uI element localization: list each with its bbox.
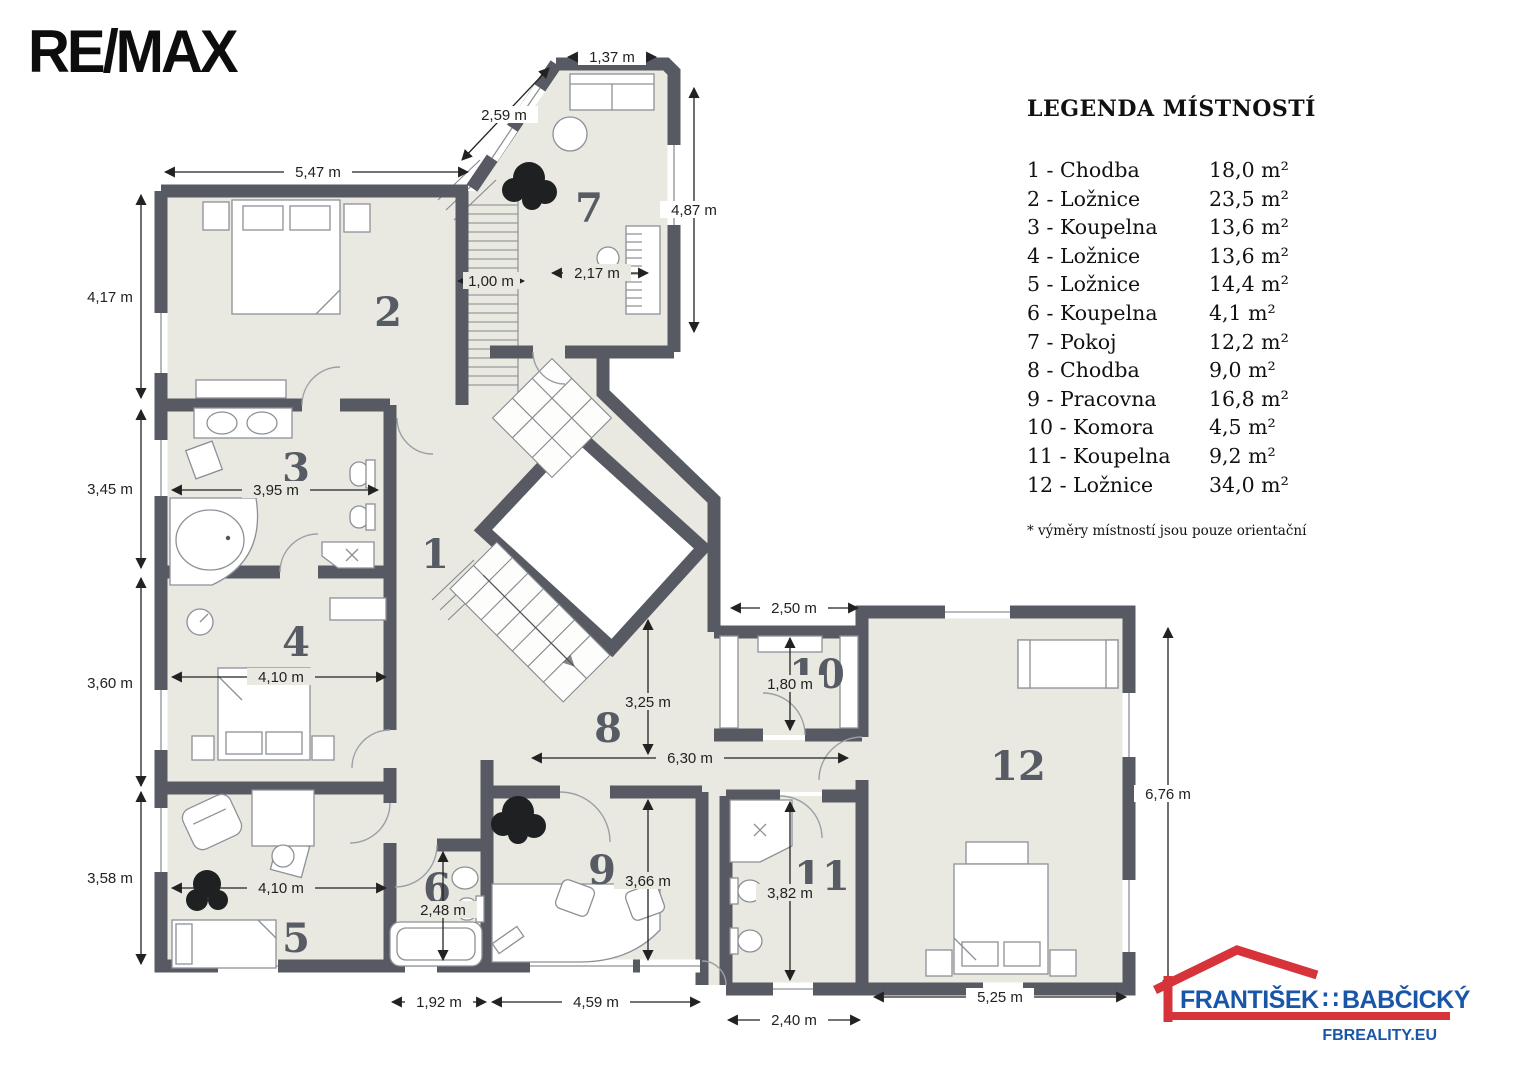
agent-name: FRANTIŠEK∷BABČICKÝ xyxy=(1180,984,1471,1014)
room-8-number: 8 xyxy=(594,705,622,752)
legend-row: 11 - Koupelna9,2 m² xyxy=(1027,442,1357,471)
dim-label: 4,10 m xyxy=(258,669,304,686)
dim-label: 6,76 m xyxy=(1145,786,1191,803)
floorplan-page: RE/MAX LEGENDA MÍSTNOSTÍ 1 - Chodba18,0 … xyxy=(0,0,1527,1080)
legend-row: 9 - Pracovna16,8 m² xyxy=(1027,385,1357,414)
dim-label: 3,60 m xyxy=(87,675,133,692)
dim-label: 3,95 m xyxy=(253,482,299,499)
legend-list: 1 - Chodba18,0 m² 2 - Ložnice23,5 m² 3 -… xyxy=(1027,156,1357,499)
dim-label: 2,17 m xyxy=(574,265,620,282)
dim-label: 5,47 m xyxy=(295,164,341,181)
legend-title: LEGENDA MÍSTNOSTÍ xyxy=(1027,96,1357,122)
dim-label: 4,17 m xyxy=(87,289,133,306)
dim-label: 2,59 m xyxy=(481,107,527,124)
legend-row: 10 - Komora4,5 m² xyxy=(1027,413,1357,442)
dim-label: 3,25 m xyxy=(625,694,671,711)
dim-label: 5,25 m xyxy=(977,989,1023,1006)
dim-label: 4,10 m xyxy=(258,880,304,897)
dim-label: 3,58 m xyxy=(87,870,133,887)
dim-label: 4,59 m xyxy=(573,994,619,1011)
dim-label: 2,50 m xyxy=(771,600,817,617)
room-4-number: 4 xyxy=(282,619,310,666)
room-5-number: 5 xyxy=(282,915,310,962)
dim-label: 3,45 m xyxy=(87,481,133,498)
legend-row: 3 - Koupelna13,6 m² xyxy=(1027,213,1357,242)
room-9-number: 9 xyxy=(588,847,616,894)
legend-row: 6 - Koupelna4,1 m² xyxy=(1027,299,1357,328)
dim-label: 1,80 m xyxy=(767,676,813,693)
room-1-number: 1 xyxy=(421,531,449,578)
legend-footnote: * výměry místností jsou pouze orientační xyxy=(1027,523,1357,539)
legend-row: 1 - Chodba18,0 m² xyxy=(1027,156,1357,185)
legend-row: 12 - Ložnice34,0 m² xyxy=(1027,471,1357,500)
agent-website: FBREALITY.EU xyxy=(1322,1027,1437,1044)
dim-label: 1,92 m xyxy=(416,994,462,1011)
legend-row: 7 - Pokoj12,2 m² xyxy=(1027,328,1357,357)
room-legend: LEGENDA MÍSTNOSTÍ 1 - Chodba18,0 m² 2 - … xyxy=(1027,96,1357,539)
room-12-number: 12 xyxy=(990,743,1046,790)
dim-label: 1,00 m xyxy=(468,273,514,290)
room-7-number: 7 xyxy=(575,185,603,232)
dim-label: 4,87 m xyxy=(671,202,717,219)
hall-furniture xyxy=(330,598,386,620)
room-2-number: 2 xyxy=(374,289,402,336)
legend-row: 8 - Chodba9,0 m² xyxy=(1027,356,1357,385)
agent-logo: FRANTIŠEK∷BABČICKÝ FBREALITY.EU xyxy=(1150,930,1527,1080)
legend-row: 4 - Ložnice13,6 m² xyxy=(1027,242,1357,271)
dim-label: 1,37 m xyxy=(589,49,635,66)
dim-label: 3,82 m xyxy=(767,885,813,902)
dim-label: 3,66 m xyxy=(625,873,671,890)
remax-logo: RE/MAX xyxy=(28,17,236,87)
dim-label: 6,30 m xyxy=(667,750,713,767)
legend-row: 2 - Ložnice23,5 m² xyxy=(1027,185,1357,214)
dim-label: 2,48 m xyxy=(420,902,466,919)
dim-label: 2,40 m xyxy=(771,1012,817,1029)
legend-row: 5 - Ložnice14,4 m² xyxy=(1027,270,1357,299)
